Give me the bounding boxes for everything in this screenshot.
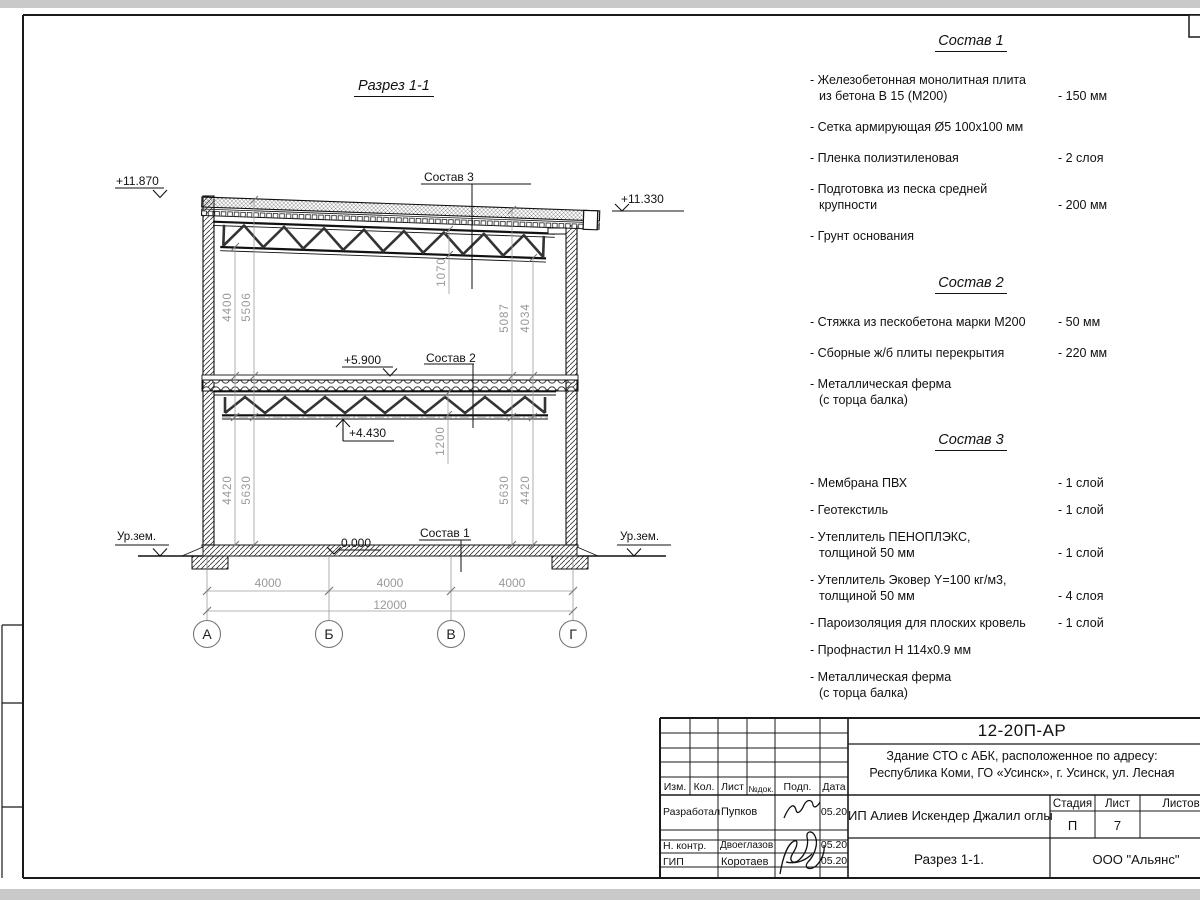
callout-sostav2: Состав 2	[426, 351, 476, 365]
dim-right-inner-bottom: 5630	[499, 475, 511, 505]
titleblock-date-developer: 05.20	[820, 806, 848, 818]
dim-total: 12000	[350, 598, 430, 612]
sostav1-list: Состав 1 - Железобетонная монолитная пли…	[810, 32, 1132, 259]
list-item: - Утеплитель ПЕНОПЛЭКС, толщиной 50 мм -…	[810, 529, 1132, 561]
sostav1-title: Состав 1	[935, 33, 1006, 52]
titleblock-role-ncontrol: Н. контр.	[663, 840, 706, 852]
elevation-zero: 0.000	[341, 536, 371, 550]
titleblock-col-list: Лист	[718, 781, 747, 793]
list-item: - Подготовка из песка средней крупности …	[810, 181, 1132, 213]
titleblock-col-data: Дата	[820, 781, 848, 793]
titleblock-date-gip: 05.20	[820, 855, 848, 867]
callout-sostav3: Состав 3	[424, 170, 474, 184]
list-item: - Сетка армирующая Ø5 100х100 мм	[810, 119, 1132, 135]
dim-bay3: 4000	[472, 576, 552, 590]
signature-strokes	[780, 801, 824, 875]
titleblock-name-gip: Коротаев	[721, 856, 769, 868]
list-item: - Геотекстиль - 1 слой	[810, 502, 1132, 518]
list-item: - Профнастил Н 114х0.9 мм	[810, 642, 1132, 658]
titleblock-col-ndok: №док.	[747, 784, 775, 794]
sheet-viewport: Разрез 1-1 +11.870 +11.330 +5.900 +4.430…	[0, 0, 1200, 900]
titleblock-col-kol: Кол.	[690, 781, 718, 793]
titleblock-date-ncontrol: 05.20	[820, 839, 848, 851]
elevation-floor2: +5.900	[344, 353, 381, 367]
ground-level-label-left: Ур.зем.	[117, 531, 156, 543]
list-item: - Пленка полиэтиленовая - 2 слоя	[810, 150, 1132, 166]
project-address-line2: Республика Коми, ГО «Усинск», г. Усинск,…	[848, 766, 1196, 780]
client-name: ИП Алиев Искендер Джалил оглы	[848, 808, 1050, 823]
dim-floor-truss-height: 1200	[435, 426, 447, 456]
document-code: 12-20П-АР	[848, 721, 1196, 741]
dim-right-outer-bottom: 4420	[520, 475, 532, 505]
elevation-roof-right: +11.330	[621, 192, 664, 206]
sostav2-title: Состав 2	[935, 275, 1006, 294]
sheet-label: Лист	[1095, 798, 1140, 810]
titleblock-name-ncontrol: Двоеглазов	[720, 840, 773, 851]
dim-left-outer-bottom: 4420	[222, 475, 234, 505]
titleblock-role-gip: ГИП	[663, 856, 684, 868]
list-item: - Сборные ж/б плиты перекрытия - 220 мм	[810, 345, 1132, 361]
list-item: - Пароизоляция для плоских кровель - 1 с…	[810, 615, 1132, 631]
sostav2-list: Состав 2 - Стяжка из пескобетона марки М…	[810, 274, 1132, 423]
titleblock-col-izm: Изм.	[660, 781, 690, 793]
project-address-line1: Здание СТО с АБК, расположенное по адрес…	[848, 749, 1196, 763]
drawing-name: Разрез 1-1.	[848, 852, 1050, 867]
titleblock-role-developer: Разработал	[663, 806, 720, 818]
list-item: - Грунт основания	[810, 228, 1132, 244]
dim-right-outer-top: 4034	[520, 303, 532, 333]
sostav3-title: Состав 3	[935, 432, 1006, 451]
sostav3-list: Состав 3 - Мембрана ПВХ - 1 слой - Геоте…	[810, 431, 1132, 712]
axis-bubble-b: Б	[316, 626, 342, 642]
callout-sostav1: Состав 1	[420, 526, 470, 540]
stage-value: П	[1050, 818, 1095, 833]
titleblock-name-developer: Пупков	[721, 806, 757, 818]
elevation-truss2: +4.430	[349, 426, 386, 440]
axis-bubble-a: А	[194, 626, 220, 642]
dim-bay1: 4000	[228, 576, 308, 590]
axis-bubble-v: В	[438, 626, 464, 642]
stage-label: Стадия	[1050, 798, 1095, 810]
list-item: - Металлическая ферма (с торца балка)	[810, 669, 1132, 701]
sheet-number: 7	[1095, 818, 1140, 833]
titleblock-col-podp: Подп.	[775, 781, 820, 793]
axis-bubble-g: Г	[560, 626, 586, 642]
list-item: - Железобетонная монолитная плита из бет…	[810, 72, 1132, 104]
dim-left-inner-bottom: 5630	[241, 475, 253, 505]
list-item: - Стяжка из пескобетона марки М200 - 50 …	[810, 314, 1132, 330]
dim-roof-truss-height: 1070	[436, 257, 448, 287]
list-item: - Металлическая ферма (с торца балка)	[810, 376, 1132, 408]
dim-right-inner-top: 5087	[499, 303, 511, 333]
section-title: Разрез 1-1	[354, 78, 434, 97]
dim-bay2: 4000	[350, 576, 430, 590]
ground-level-label-right: Ур.зем.	[620, 531, 659, 543]
company-name: ООО "Альянс"	[1050, 852, 1200, 867]
sheets-label: Листов	[1140, 798, 1200, 810]
list-item: - Утеплитель Эковер Y=100 кг/м3, толщино…	[810, 572, 1132, 604]
elevation-roof-left: +11.870	[116, 174, 159, 188]
list-item: - Мембрана ПВХ - 1 слой	[810, 475, 1132, 491]
dim-left-inner-top: 5506	[241, 292, 253, 322]
dim-left-outer-top: 4400	[222, 292, 234, 322]
